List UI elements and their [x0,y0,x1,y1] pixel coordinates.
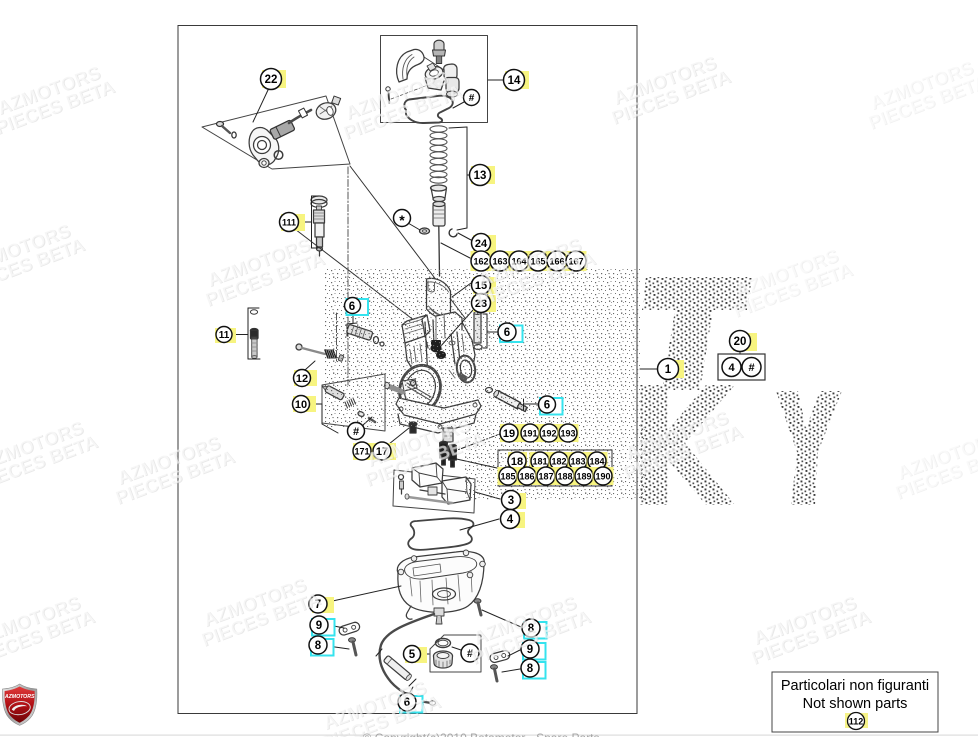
svg-text:Particolari non figuranti: Particolari non figuranti [781,678,929,694]
svg-text:20: 20 [734,336,747,348]
svg-text:14: 14 [508,75,521,87]
svg-text:6: 6 [504,327,510,339]
svg-text:4: 4 [728,362,735,374]
svg-text:182: 182 [551,456,566,466]
svg-text:#: # [353,426,359,438]
svg-text:181: 181 [532,456,547,466]
svg-text:4: 4 [507,514,514,526]
svg-text:22: 22 [265,74,278,86]
svg-text:6: 6 [544,400,550,412]
svg-text:192: 192 [541,428,556,438]
svg-text:19: 19 [503,428,515,440]
svg-text:1: 1 [665,364,672,376]
svg-text:185: 185 [500,471,515,481]
svg-text:3: 3 [508,495,514,507]
svg-text:13: 13 [474,170,487,182]
svg-text:*: * [399,212,405,228]
svg-text:111: 111 [282,217,296,227]
svg-text:Not shown parts: Not shown parts [803,696,908,712]
svg-text:191: 191 [522,428,537,438]
svg-text:9: 9 [316,620,322,632]
svg-text:186: 186 [519,471,534,481]
svg-text:12: 12 [296,373,308,385]
svg-text:6: 6 [349,301,355,313]
svg-text:8: 8 [527,663,534,675]
svg-text:188: 188 [557,471,572,481]
svg-text:112: 112 [849,717,864,727]
svg-text:183: 183 [570,456,585,466]
svg-text:190: 190 [595,471,610,481]
svg-text:193: 193 [560,428,575,438]
svg-text:10: 10 [295,399,307,411]
svg-text:AZMOTORS: AZMOTORS [4,694,35,700]
svg-text:© Copyright(c)2010 Betamotor -: © Copyright(c)2010 Betamotor - Spare Par… [363,731,600,737]
svg-text:5: 5 [409,649,416,661]
svg-text:24: 24 [475,238,488,250]
svg-text:11: 11 [219,330,230,341]
svg-text:184: 184 [589,456,604,466]
svg-text:8: 8 [315,640,322,652]
svg-text:#: # [469,93,475,104]
svg-text:18: 18 [511,456,523,468]
svg-text:187: 187 [538,471,553,481]
svg-text:189: 189 [576,471,591,481]
svg-text:#: # [748,362,754,374]
svg-text:162: 162 [473,256,488,266]
